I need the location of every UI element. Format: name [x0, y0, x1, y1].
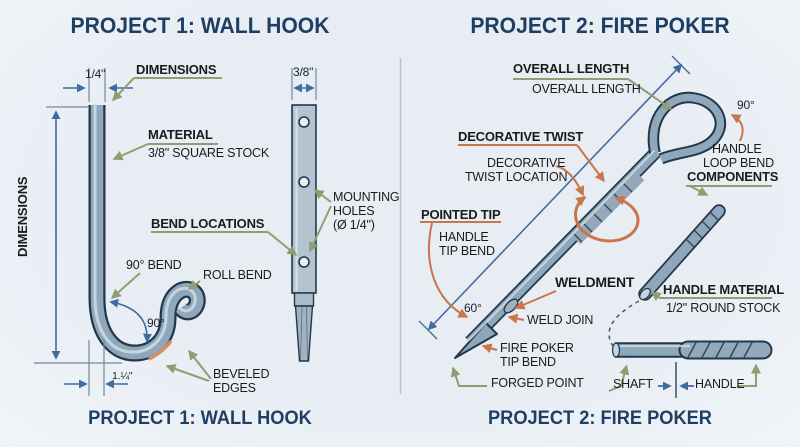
- beveled-edges-line1: BEVELED: [213, 368, 269, 381]
- blacksmith-projects-diagram: PROJECT 1: WALL HOOK PROJECT 1: WALL HOO…: [0, 0, 800, 447]
- fire-poker-tip-bend-line1: FIRE POKER: [500, 342, 574, 355]
- project1-title: PROJECT 1: WALL HOOK: [8, 13, 392, 39]
- bend-90-label: 90° BEND: [126, 259, 182, 272]
- mounting-holes-line1: MOUNTING: [333, 191, 399, 204]
- project2-title: PROJECT 2: FIRE POKER: [408, 13, 792, 39]
- mounting-hole-1: [299, 117, 309, 127]
- material-value: 3/8" SQUARE STOCK: [148, 147, 269, 160]
- weldment-label: WELDMENT: [555, 275, 634, 290]
- handle-label: HANDLE: [695, 378, 745, 391]
- forged-point-label: FORGED POINT: [491, 377, 584, 390]
- beveled-edges-line2: EDGES: [213, 382, 256, 395]
- components-label: COMPONENTS: [687, 170, 778, 184]
- twist-location-line1: DECORATIVE: [487, 157, 565, 170]
- handle-material-value: 1/2" ROUND STOCK: [666, 302, 780, 315]
- mounting-holes-line3: (Ø 1/4"): [333, 219, 375, 232]
- mounting-hole-3: [299, 257, 309, 267]
- angle-loop-90-label: 90°: [737, 99, 755, 112]
- shaft-label: SHAFT: [613, 378, 653, 391]
- handle-tip-bend-line1: HANDLE: [439, 231, 489, 244]
- project2-footer: PROJECT 2: FIRE POKER: [408, 408, 792, 430]
- dim-hook-width: 1.¼": [112, 371, 132, 382]
- material-label: MATERIAL: [148, 128, 213, 142]
- project1-footer: PROJECT 1: WALL HOOK: [8, 408, 392, 430]
- handle-loop-bend-line1: HANDLE: [712, 143, 762, 156]
- angle-90-label: 90°: [147, 317, 165, 330]
- weld-join-label: WELD JOIN: [527, 314, 593, 327]
- overall-length-value: OVERALL LENGTH: [532, 83, 641, 96]
- mounting-hole-2: [299, 177, 309, 187]
- dim-bar-width: 3/8": [293, 66, 313, 79]
- fire-poker-tip-bend-line2: TIP BEND: [500, 356, 556, 369]
- dimensions-label: DIMENSIONS: [136, 63, 216, 77]
- twist-location-line2: TWIST LOCATION: [465, 171, 567, 184]
- handle-tip-bend-line2: TIP BEND: [439, 245, 495, 258]
- chisel-tip: [296, 306, 313, 361]
- roll-bend-label: ROLL BEND: [203, 269, 272, 282]
- dimensions-vertical-label: DIMENSIONS: [16, 169, 30, 265]
- dim-quarter-inch: 1/4": [85, 68, 105, 81]
- mounting-holes-line2: HOLES: [333, 205, 374, 218]
- pointed-tip-label: POINTED TIP: [421, 208, 500, 222]
- decorative-twist-label: DECORATIVE TWIST: [458, 130, 583, 144]
- handle-material-label: HANDLE MATERIAL: [663, 283, 784, 297]
- angle-arc-90: [111, 302, 147, 341]
- angle-60-label: 60°: [464, 302, 482, 315]
- assembly-link: [609, 301, 639, 346]
- overall-length-label: OVERALL LENGTH: [513, 62, 629, 76]
- bend-locations-label: BEND LOCATIONS: [151, 217, 264, 231]
- mounting-bar-drawing: [292, 105, 316, 361]
